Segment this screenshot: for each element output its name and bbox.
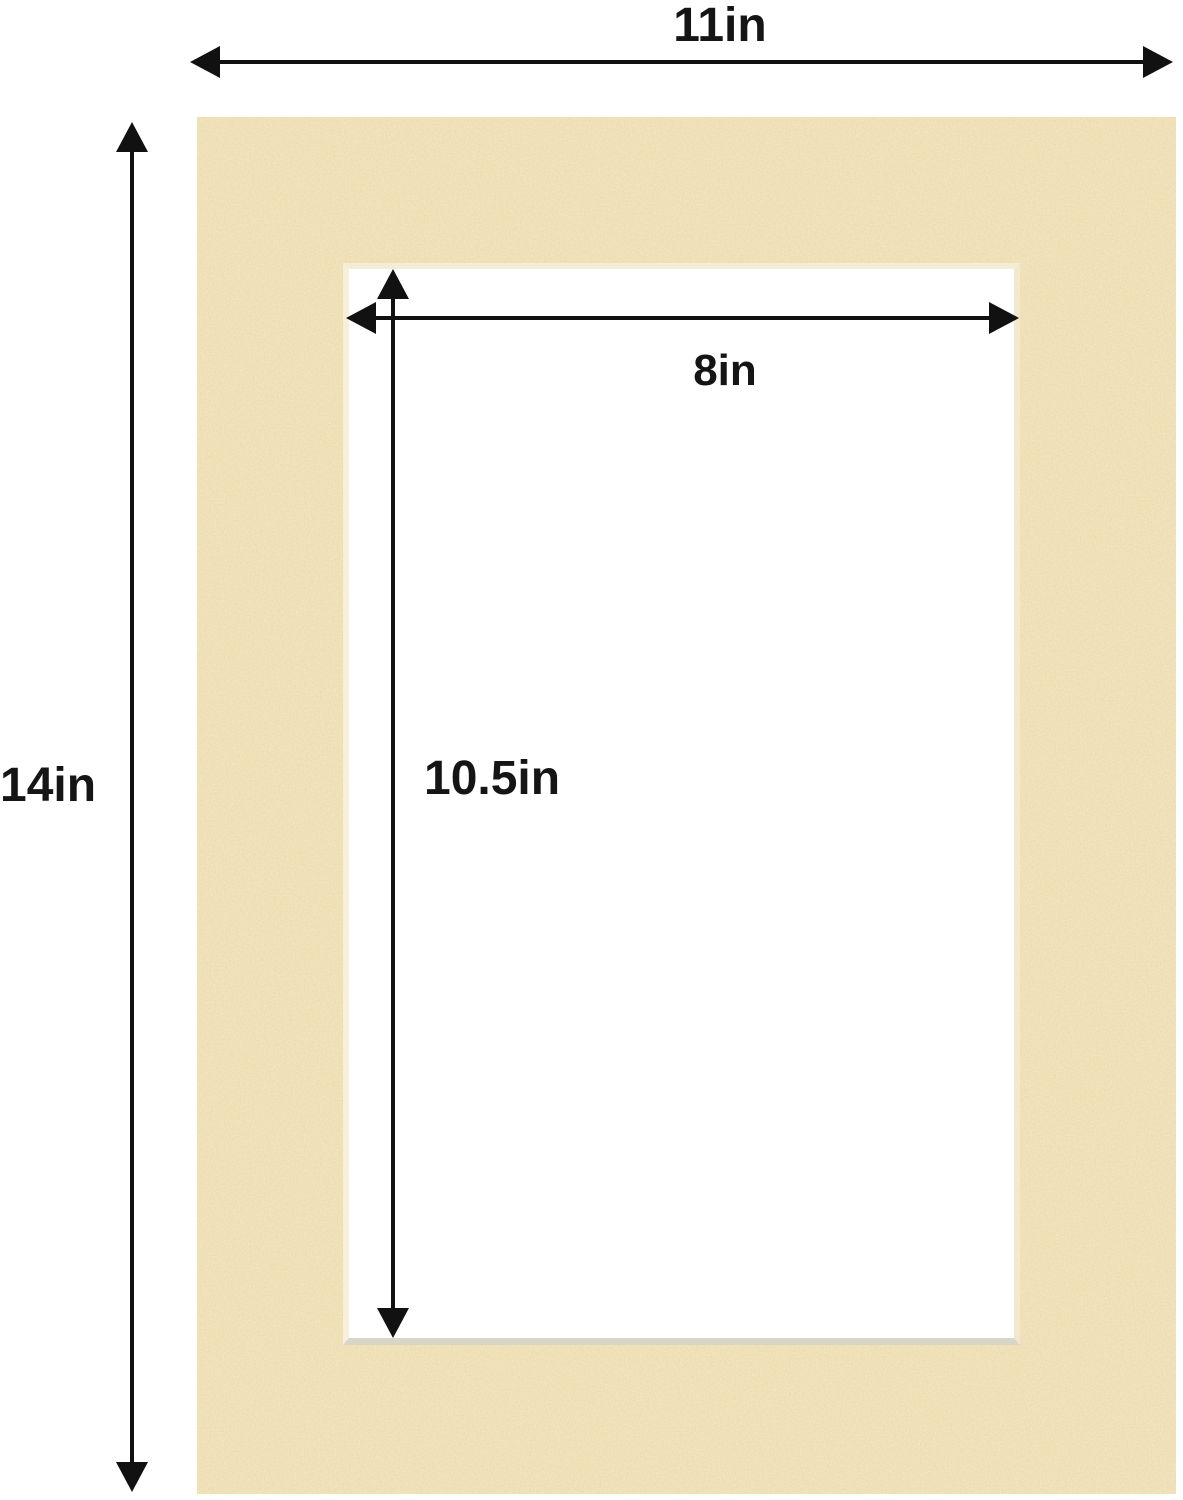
dimension-line [391,293,395,1314]
mat-dimension-diagram: 11in 14in 8in 10.5in [0,0,1183,1500]
arrowhead-right-icon [1143,46,1173,78]
opening-width-label: 8in [625,349,825,393]
arrowhead-right-icon [989,302,1019,334]
dimension-opening-height-arrow [377,269,409,1338]
outer-height-label: 14in [0,762,112,810]
opening-height-label: 10.5in [424,755,560,803]
dimension-line [370,316,995,320]
outer-width-label: 11in [620,2,820,50]
arrowhead-down-icon [116,1462,148,1492]
dimension-line [214,60,1149,64]
dimension-line [130,146,134,1468]
dimension-opening-width-arrow [346,302,1019,334]
arrowhead-down-icon [377,1308,409,1338]
dimension-outer-height-arrow [116,122,148,1492]
